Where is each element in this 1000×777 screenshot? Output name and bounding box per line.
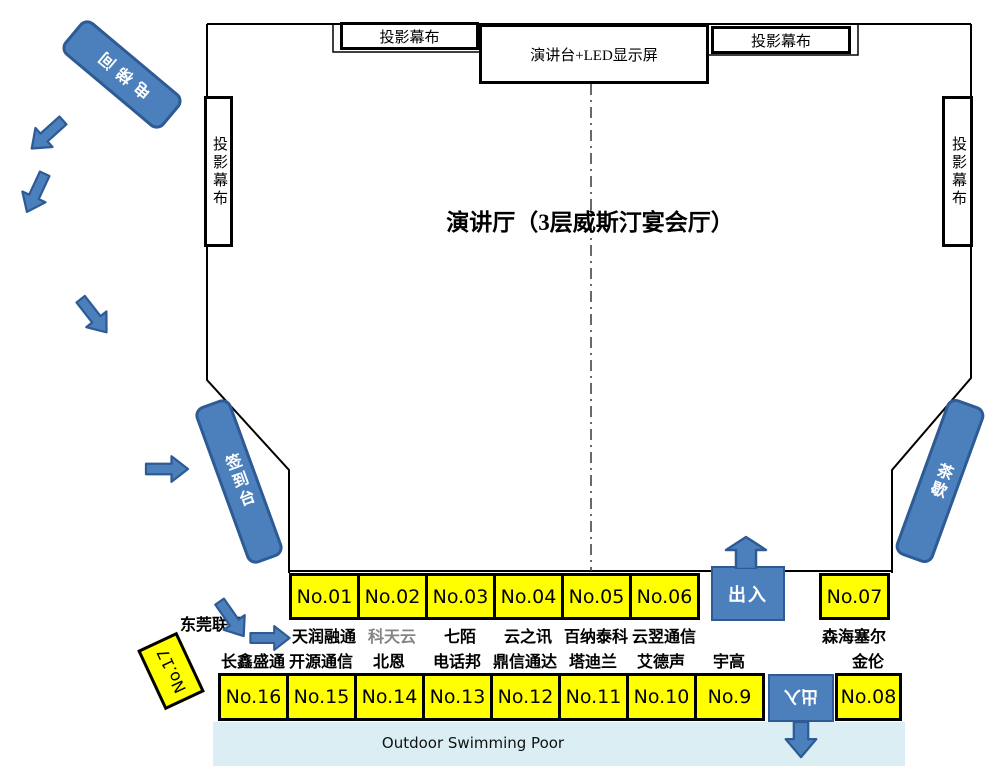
projection-screen-top-left: 投影幕布 [340, 22, 479, 50]
booth-number: No.16 [226, 686, 282, 708]
podium-label: 演讲台+LED显示屏 [530, 44, 658, 65]
projection-screen-left: 投影幕布 [204, 96, 233, 247]
booth-no-06: No.06 [629, 573, 700, 620]
booth-number: No.11 [566, 686, 622, 708]
booth-no-05: No.05 [561, 573, 632, 620]
booth-number: No.07 [827, 586, 883, 608]
booth-no-03: No.03 [425, 573, 496, 620]
booth-no-14: No.14 [354, 673, 425, 721]
booth-number: No.15 [294, 686, 350, 708]
screen-label: 投影幕布 [379, 26, 439, 47]
booth-no-9: No.9 [694, 673, 765, 721]
floor-plan: 投影幕布 演讲台+LED显示屏 投影幕布 投影幕布 投影幕布 演讲厅（3层威斯汀… [0, 0, 1000, 777]
booth-number: No.01 [297, 586, 353, 608]
company-label: 云翌通信 [609, 623, 719, 647]
booth-number: No.05 [569, 586, 625, 608]
booth-no-15: No.15 [286, 673, 357, 721]
booth-number: No.06 [637, 586, 693, 608]
booth-number: No.10 [634, 686, 690, 708]
company-label: 金伦 [813, 648, 923, 672]
booth-no-13: No.13 [422, 673, 493, 721]
booth-number: No.12 [498, 686, 554, 708]
entrance-up-arrow-icon [722, 535, 770, 573]
company-label: 宇高 [674, 648, 784, 672]
booth-number: No.17 [152, 646, 189, 697]
booth-no-07: No.07 [819, 573, 890, 620]
booth-number: No.14 [362, 686, 418, 708]
booth-number: No.13 [430, 686, 486, 708]
booth-no-10: No.10 [626, 673, 697, 721]
booth-no-16: No.16 [218, 673, 289, 721]
pool-label: Outdoor Swimming Poor [213, 734, 733, 752]
booth-no-02: No.02 [357, 573, 428, 620]
entrance-exit-label: 出入 [784, 686, 818, 711]
booth-number: No.02 [365, 586, 421, 608]
screen-label: 投影幕布 [950, 136, 965, 208]
booth-number: No.03 [433, 586, 489, 608]
entrance-down-arrow-icon [783, 718, 819, 766]
entrance-exit-top-box: 出入 [711, 566, 785, 621]
hall-title: 演讲厅（3层威斯汀宴会厅） [420, 203, 760, 237]
podium-led-box: 演讲台+LED显示屏 [479, 24, 709, 84]
signin-label: 签到台 [222, 452, 257, 511]
route-arrow-icon [243, 624, 297, 656]
booth-no-08: No.08 [835, 673, 902, 721]
booth-no-04: No.04 [493, 573, 564, 620]
projection-screen-right: 投影幕布 [942, 96, 973, 247]
screen-label: 投影幕布 [751, 30, 811, 51]
projection-screen-top-right: 投影幕布 [711, 26, 851, 54]
route-arrow-icon [141, 454, 193, 488]
booth-number: No.08 [841, 686, 897, 708]
booth-no-11: No.11 [558, 673, 629, 721]
company-label: 森海塞尔 [799, 623, 909, 647]
entrance-exit-bottom-box: 出入 [768, 674, 834, 722]
screen-label: 投影幕布 [211, 136, 226, 208]
tea-break-label: 茶歇 [926, 460, 954, 501]
booth-no-12: No.12 [490, 673, 561, 721]
entrance-exit-label: 出入 [728, 581, 768, 607]
booth-number: No.9 [708, 686, 752, 708]
booth-number: No.04 [501, 586, 557, 608]
